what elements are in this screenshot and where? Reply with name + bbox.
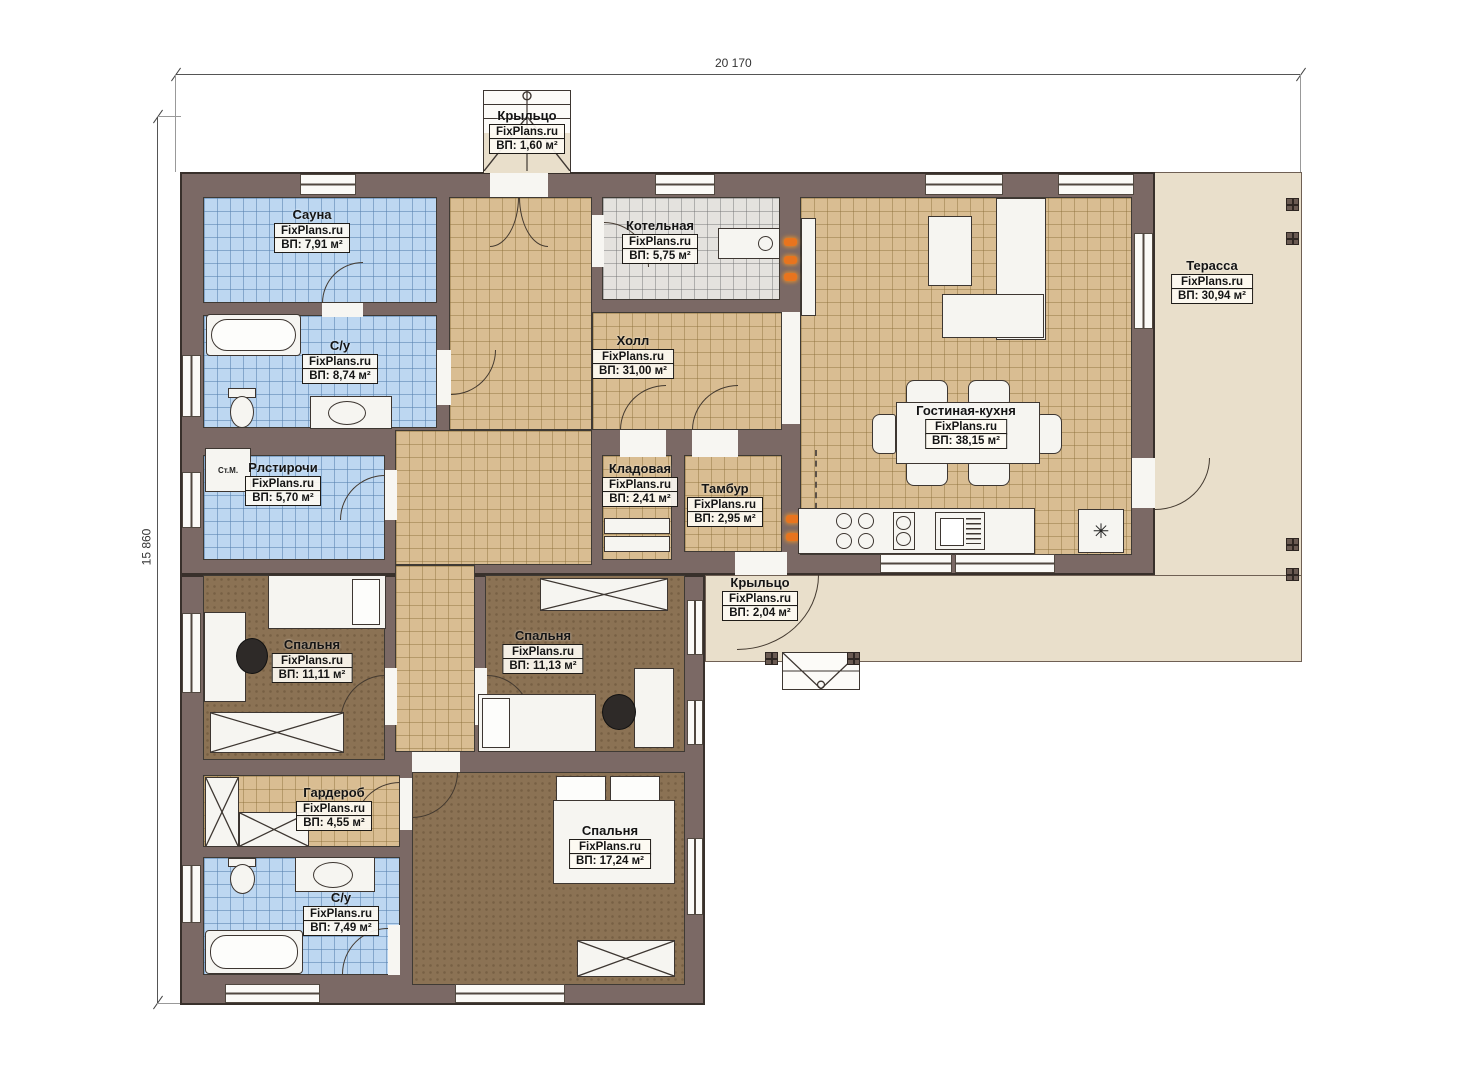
room-name: Спальня [502,628,583,643]
window [955,554,1055,573]
brand-label: FixPlans.ru [687,497,763,513]
terrace-post [1286,568,1299,581]
room-label-hall: Холл FixPlans.ru ВП: 31,00 м² [592,333,674,379]
dining-chair [1038,414,1062,454]
brand-label: FixPlans.ru [722,591,798,607]
room-name: Гардероб [296,785,372,800]
wardrobe-x-lines [578,941,674,976]
brand-label: FixPlans.ru [1171,274,1253,290]
extension-line [1300,74,1301,172]
door-opening [322,303,363,317]
window [455,984,565,1003]
extension-line [157,1003,181,1004]
fridge: ✳ [1078,509,1124,553]
wardrobe-unit [210,712,344,753]
brand-label: FixPlans.ru [303,906,379,922]
room-label-vestibule: Тамбур FixPlans.ru ВП: 2,95 м² [687,481,763,527]
door-opening [592,215,604,267]
brand-label: FixPlans.ru [274,223,350,239]
room-info-box: FixPlans.ru ВП: 7,49 м² [303,907,379,936]
dining-chair [968,380,1010,404]
pantry-shelf [604,518,670,534]
room-label-bath-top: С/у FixPlans.ru ВП: 8,74 м² [302,338,378,384]
room-name: С/у [303,890,379,905]
room-area: ВП: 8,74 м² [302,368,378,384]
door-opening [620,430,666,457]
wardrobe-x-lines [206,778,238,846]
room-name: Спальня [569,823,651,838]
wardrobe-unit [540,578,668,611]
pillow [556,776,606,802]
wardrobe-unit [205,777,239,847]
stove-burner [836,513,852,529]
room-label-living-kitchen: Гостиная-кухня FixPlans.ru ВП: 38,15 м² [916,403,1016,449]
entrance-opening [490,172,548,197]
toilet-bowl [230,396,254,428]
window [182,613,201,693]
room-info-box: FixPlans.ru ВП: 4,55 м² [296,802,372,831]
radiator [784,238,797,246]
desk [634,668,674,748]
room-area: ВП: 7,49 м² [303,920,379,936]
wardrobe-unit [577,940,675,977]
room-area: ВП: 4,55 м² [296,815,372,831]
window [1134,233,1153,329]
room-info-box: FixPlans.ru ВП: 5,75 м² [622,235,698,264]
extension-line [175,74,176,172]
brand-label: FixPlans.ru [592,349,674,365]
room-label-wardrobe: Гардероб FixPlans.ru ВП: 4,55 м² [296,785,372,831]
toilet-bowl [230,864,255,894]
pantry-shelf [604,536,670,552]
window [655,174,715,195]
oven-door [940,518,964,546]
window [225,984,320,1003]
room-area: ВП: 11,13 м² [502,658,583,674]
pillow [482,698,510,748]
door-opening [388,925,400,975]
terrace-post [1286,198,1299,211]
room-label-terrace: Терасса FixPlans.ru ВП: 30,94 м² [1171,258,1253,304]
bathtub [206,314,301,356]
pillow [610,776,660,802]
dining-chair [872,414,896,454]
room-area: ВП: 30,94 м² [1171,288,1253,304]
window [182,472,201,528]
room-area: ВП: 2,95 м² [687,511,763,527]
window [925,174,1003,195]
fridge-symbol: ✳ [1093,519,1110,544]
room-name: С/у [302,338,378,353]
desk-chair [236,638,268,674]
room-label-bedroom-bottom: Спальня FixPlans.ru ВП: 17,24 м² [569,823,651,869]
room-area: ВП: 2,04 м² [722,605,798,621]
room-info-box: FixPlans.ru ВП: 17,24 м² [569,840,651,869]
room-label-bedroom-left: Спальня FixPlans.ru ВП: 11,11 м² [272,637,353,683]
room-label-laundry: Рлстирочи FixPlans.ru ВП: 5,70 м² [245,460,321,506]
room-name: Крыльцо [489,108,565,123]
dimension-line-top [175,74,1301,75]
room-label-porch-bottom: Крыльцо FixPlans.ru ВП: 2,04 м² [722,575,798,621]
room-name: Холл [592,333,674,348]
room-hall-mid [395,430,592,565]
brand-label: FixPlans.ru [502,644,583,660]
room-info-box: FixPlans.ru ВП: 11,11 м² [272,654,353,683]
room-name: Тамбур [687,481,763,496]
brand-label: FixPlans.ru [296,801,372,817]
door-opening [385,470,397,520]
brand-label: FixPlans.ru [489,124,565,140]
room-area: ВП: 38,15 м² [925,433,1007,449]
room-name: Котельная [622,218,698,233]
porch-post [847,652,860,665]
room-info-box: FixPlans.ru ВП: 7,91 м² [274,224,350,253]
room-info-box: FixPlans.ru ВП: 2,04 м² [722,592,798,621]
room-area: ВП: 1,60 м² [489,138,565,154]
passage-opening [782,312,800,424]
dining-chair [906,462,948,486]
room-info-box: FixPlans.ru ВП: 38,15 м² [925,420,1007,449]
room-area: ВП: 31,00 м² [592,363,674,379]
door-opening [437,350,451,405]
door-opening [400,778,412,830]
porch-post [765,652,778,665]
floor-plan: 20 170 15 860 [0,0,1473,1080]
wardrobe-x-lines [541,579,667,610]
room-info-box: FixPlans.ru ВП: 8,74 м² [302,355,378,384]
door-opening [385,668,397,725]
room-label-bedroom-mid: Спальня FixPlans.ru ВП: 11,13 м² [502,628,583,674]
terrace-post [1286,232,1299,245]
dining-chair [968,462,1010,486]
boiler-dial [758,236,773,251]
brand-label: FixPlans.ru [925,419,1007,435]
sink-bowl [896,516,911,530]
dimension-line-left [157,116,158,1004]
window [300,174,356,195]
dining-chair [906,380,948,404]
oven-unit [935,512,985,550]
door-opening [735,552,787,575]
room-label-sauna: Сауна FixPlans.ru ВП: 7,91 м² [274,207,350,253]
room-area: ВП: 17,24 м² [569,853,651,869]
room-label-pantry: Кладовая FixPlans.ru ВП: 2,41 м² [602,461,678,507]
bathtub-basin [211,319,296,351]
room-hall [449,197,592,430]
room-info-box: FixPlans.ru ВП: 2,41 м² [602,478,678,507]
room-label-boiler: Котельная FixPlans.ru ВП: 5,75 м² [622,218,698,264]
door-opening [412,752,460,772]
sink-basin [313,862,353,888]
window [687,838,703,915]
room-info-box: FixPlans.ru ВП: 30,94 м² [1171,275,1253,304]
wardrobe-x-lines [211,713,343,752]
brand-label: FixPlans.ru [302,354,378,370]
wall-panel [801,218,816,316]
window [182,355,201,417]
bathtub [205,930,303,974]
sofa-horizontal [942,294,1044,338]
room-info-box: FixPlans.ru ВП: 1,60 м² [489,125,565,154]
door-opening [1132,458,1155,508]
brand-label: FixPlans.ru [272,653,353,669]
stove-burner [858,513,874,529]
room-area: ВП: 7,91 м² [274,237,350,253]
room-name: Крыльцо [722,575,798,590]
sink-bowl [896,532,911,546]
window [687,600,703,655]
desk-chair [602,694,636,730]
room-info-box: FixPlans.ru ВП: 11,13 м² [502,645,583,674]
room-info-box: FixPlans.ru ВП: 2,95 м² [687,498,763,527]
room-name: Спальня [272,637,353,652]
dimension-width-label: 20 170 [715,56,752,70]
room-area: ВП: 11,11 м² [272,667,353,683]
room-area: ВП: 2,41 м² [602,491,678,507]
room-label-bath-bottom: С/у FixPlans.ru ВП: 7,49 м² [303,890,379,936]
kitchen-counter [798,508,1035,554]
window [1058,174,1134,195]
radiator [784,273,797,281]
extension-line [157,116,181,117]
dimension-height-label: 15 860 [139,529,153,566]
room-info-box: FixPlans.ru ВП: 5,70 м² [245,477,321,506]
pillow [352,579,380,625]
brand-label: FixPlans.ru [569,839,651,855]
window [182,865,201,923]
bathtub-basin [210,935,298,969]
room-name: Рлстирочи [245,460,321,475]
brand-label: FixPlans.ru [602,477,678,493]
room-name: Терасса [1171,258,1253,273]
terrace-post [1286,538,1299,551]
washing-machine-label: Ст.М. [218,466,238,475]
sink-basin [328,401,366,425]
stove-burner [836,533,852,549]
brand-label: FixPlans.ru [622,234,698,250]
room-name: Гостиная-кухня [916,403,1016,418]
window [880,554,952,573]
door-opening [692,430,738,457]
window [687,700,703,745]
brand-label: FixPlans.ru [245,476,321,492]
room-area: ВП: 5,70 м² [245,490,321,506]
room-corridor [395,565,475,752]
room-info-box: FixPlans.ru ВП: 31,00 м² [592,350,674,379]
room-name: Сауна [274,207,350,222]
tv-cabinet [928,216,972,286]
room-label-porch-top: Крыльцо FixPlans.ru ВП: 1,60 м² [489,108,565,154]
radiator [784,256,797,264]
vent-lines [966,518,981,544]
room-name: Кладовая [602,461,678,476]
room-area: ВП: 5,75 м² [622,248,698,264]
stove-burner [858,533,874,549]
